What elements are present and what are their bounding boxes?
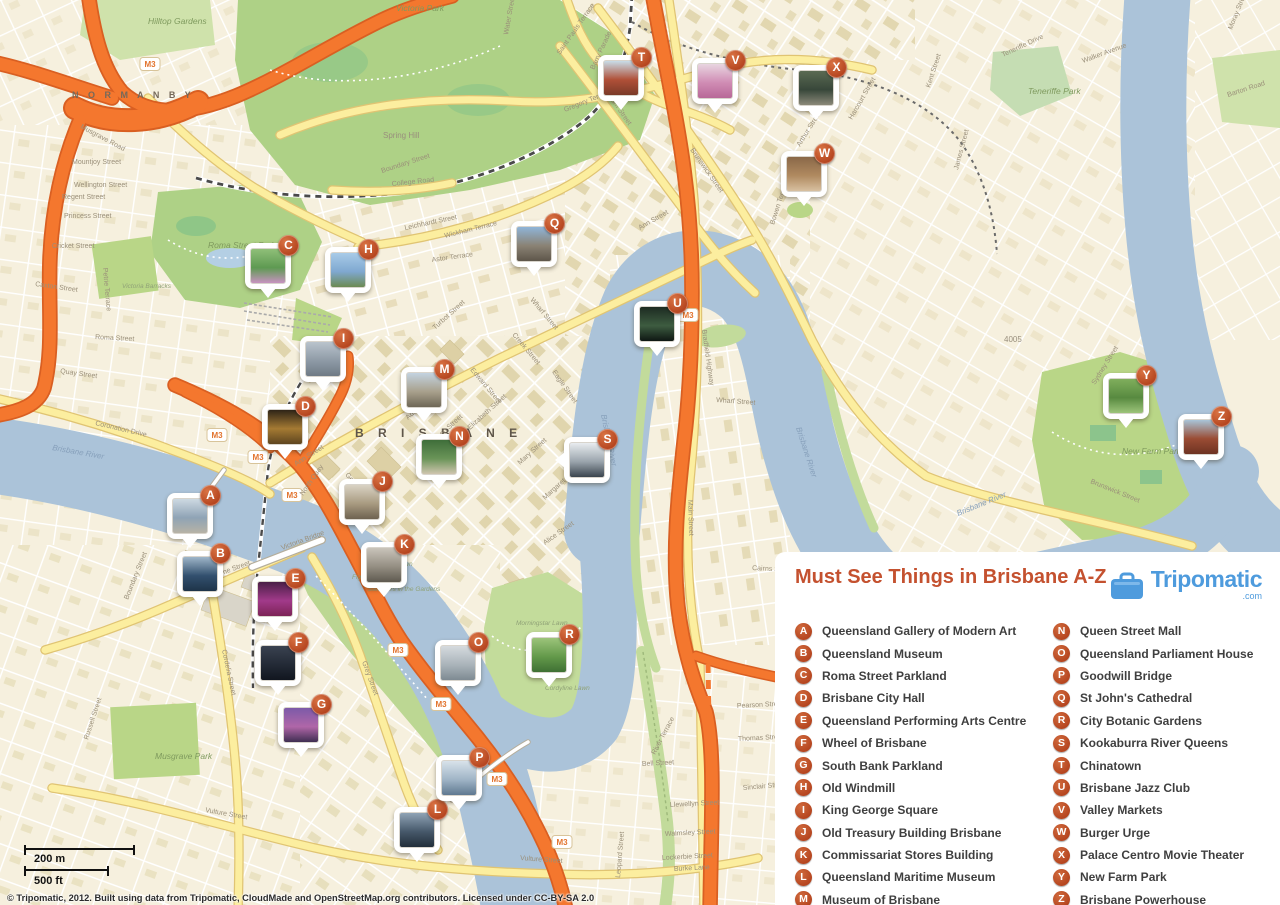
legend-badge: Y bbox=[1053, 869, 1070, 886]
tripomatic-logo[interactable]: Tripomatic .com bbox=[1109, 568, 1262, 601]
legend-item-label: Queensland Gallery of Modern Art bbox=[822, 624, 1016, 638]
poi-marker-h[interactable]: H bbox=[325, 247, 371, 293]
legend-badge: N bbox=[1053, 623, 1070, 640]
legend-item-label: Valley Markets bbox=[1080, 803, 1163, 817]
legend-item-label: Queensland Maritime Museum bbox=[822, 870, 995, 884]
legend-item-label: Museum of Brisbane bbox=[822, 893, 940, 905]
legend-item-label: Brisbane City Hall bbox=[822, 691, 925, 705]
legend-item-d[interactable]: DBrisbane City Hall bbox=[795, 687, 1053, 709]
marker-tail bbox=[354, 524, 370, 534]
poi-marker-w[interactable]: W bbox=[781, 151, 827, 197]
legend-item-i[interactable]: IKing George Square bbox=[795, 799, 1053, 821]
legend-item-label: Commissariat Stores Building bbox=[822, 848, 993, 862]
legend-panel: Must See Things in Brisbane A-Z Tripomat… bbox=[775, 552, 1280, 905]
marker-badge: F bbox=[288, 632, 309, 653]
legend-item-label: Kookaburra River Queens bbox=[1080, 736, 1228, 750]
legend-header: Must See Things in Brisbane A-Z Tripomat… bbox=[795, 566, 1280, 610]
legend-item-label: Goodwill Bridge bbox=[1080, 669, 1172, 683]
marker-tail bbox=[451, 800, 467, 810]
marker-badge: X bbox=[826, 57, 847, 78]
marker-tail bbox=[796, 196, 812, 206]
poi-marker-v[interactable]: V bbox=[692, 58, 738, 104]
place-label: N O R M A N B Y bbox=[72, 90, 194, 100]
legend-item-k[interactable]: KCommissariat Stores Building bbox=[795, 844, 1053, 866]
brand-tld: .com bbox=[1151, 592, 1262, 601]
motorway-shield: M3 bbox=[282, 489, 302, 502]
marker-badge: Y bbox=[1136, 365, 1157, 386]
place-label: Hilltop Gardens bbox=[148, 16, 207, 26]
street-label: Regent Street bbox=[62, 194, 105, 201]
marker-tail bbox=[192, 596, 208, 606]
legend-badge: D bbox=[795, 690, 812, 707]
svg-text:M3: M3 bbox=[556, 838, 568, 847]
legend-item-e[interactable]: EQueensland Performing Arts Centre bbox=[795, 710, 1053, 732]
legend-badge: I bbox=[795, 802, 812, 819]
poi-marker-u[interactable]: U bbox=[634, 301, 680, 347]
marker-badge: N bbox=[449, 426, 470, 447]
marker-tail bbox=[260, 288, 276, 298]
poi-marker-d[interactable]: D bbox=[262, 404, 308, 450]
legend-badge: U bbox=[1053, 779, 1070, 796]
marker-tail bbox=[409, 852, 425, 862]
marker-tail bbox=[649, 346, 665, 356]
marker-tail bbox=[416, 412, 432, 422]
marker-badge: J bbox=[372, 471, 393, 492]
marker-tail bbox=[555, 452, 565, 468]
legend-badge: W bbox=[1053, 824, 1070, 841]
legend-badge: G bbox=[795, 757, 812, 774]
legend-badge: H bbox=[795, 779, 812, 796]
poi-marker-i[interactable]: I bbox=[300, 336, 346, 382]
legend-item-label: Brisbane Powerhouse bbox=[1080, 893, 1206, 905]
place-label: 4005 bbox=[1004, 335, 1022, 344]
place-label: Victoria Park bbox=[396, 3, 445, 13]
legend-item-label: Queen Street Mall bbox=[1080, 624, 1181, 638]
legend-item-label: Brisbane Jazz Club bbox=[1080, 781, 1190, 795]
legend-item-x[interactable]: XPalace Centro Movie Theater bbox=[1053, 844, 1253, 866]
marker-badge: D bbox=[295, 396, 316, 417]
suitcase-icon bbox=[1109, 571, 1145, 601]
legend-item-h[interactable]: HOld Windmill bbox=[795, 777, 1053, 799]
legend-item-n[interactable]: NQueen Street Mall bbox=[1053, 620, 1253, 642]
poi-marker-o[interactable]: O bbox=[435, 640, 481, 686]
svg-text:M3: M3 bbox=[144, 60, 156, 69]
marker-badge: Z bbox=[1211, 406, 1232, 427]
place-label: Teneriffe Park bbox=[1028, 86, 1081, 96]
motorway-shield: M3 bbox=[487, 773, 507, 786]
street-label: Mountjoy Street bbox=[72, 159, 121, 166]
legend-badge: V bbox=[1053, 802, 1070, 819]
marker-badge: E bbox=[285, 568, 306, 589]
legend-item-t[interactable]: TChinatown bbox=[1053, 754, 1253, 776]
street-label: Cricket Street bbox=[52, 243, 94, 250]
brand-name: Tripomatic bbox=[1151, 566, 1262, 592]
poi-marker-k[interactable]: K bbox=[361, 542, 407, 588]
legend-item-j[interactable]: JOld Treasury Building Brisbane bbox=[795, 822, 1053, 844]
poi-marker-g[interactable]: G bbox=[278, 702, 324, 748]
copyright-attribution: © Tripomatic, 2012. Built using data fro… bbox=[7, 893, 594, 903]
legend-badge: O bbox=[1053, 645, 1070, 662]
legend-badge: Z bbox=[1053, 891, 1070, 905]
legend-item-b[interactable]: BQueensland Museum bbox=[795, 642, 1053, 664]
motorway-shield: M3 bbox=[207, 429, 227, 442]
scale-metric-label: 200 m bbox=[34, 853, 65, 865]
marker-tail bbox=[182, 538, 198, 548]
legend-badge: M bbox=[795, 891, 812, 905]
motorway-shield: M3 bbox=[140, 58, 160, 71]
poi-marker-t[interactable]: T bbox=[598, 55, 644, 101]
legend-item-m[interactable]: MMuseum of Brisbane bbox=[795, 889, 1053, 905]
poi-marker-b[interactable]: B bbox=[177, 551, 223, 597]
legend-badge: A bbox=[795, 623, 812, 640]
poi-marker-e[interactable]: E bbox=[252, 576, 298, 622]
legend-badge: X bbox=[1053, 847, 1070, 864]
svg-text:M3: M3 bbox=[435, 700, 447, 709]
legend-columns: AQueensland Gallery of Modern ArtBQueens… bbox=[795, 620, 1280, 905]
legend-item-label: Queensland Parliament House bbox=[1080, 647, 1253, 661]
marker-badge: R bbox=[559, 624, 580, 645]
marker-badge: P bbox=[469, 747, 490, 768]
marker-tail bbox=[450, 685, 466, 695]
legend-item-label: Old Windmill bbox=[822, 781, 895, 795]
motorway-shield: M3 bbox=[431, 698, 451, 711]
legend-badge: B bbox=[795, 645, 812, 662]
place-label: Spring Hill bbox=[383, 131, 420, 140]
marker-tail bbox=[293, 747, 309, 757]
legend-badge: K bbox=[795, 847, 812, 864]
legend-item-g[interactable]: GSouth Bank Parkland bbox=[795, 754, 1053, 776]
legend-column-1: AQueensland Gallery of Modern ArtBQueens… bbox=[795, 620, 1053, 905]
motorway-shield: M3 bbox=[552, 836, 572, 849]
poi-marker-p[interactable]: P bbox=[436, 755, 482, 801]
marker-badge: I bbox=[333, 328, 354, 349]
legend-badge: Q bbox=[1053, 690, 1070, 707]
marker-badge: S bbox=[597, 429, 618, 450]
legend-item-u[interactable]: UBrisbane Jazz Club bbox=[1053, 777, 1253, 799]
marker-badge: A bbox=[200, 485, 221, 506]
legend-item-p[interactable]: PGoodwill Bridge bbox=[1053, 665, 1253, 687]
marker-tail bbox=[808, 110, 824, 120]
marker-tail bbox=[1193, 459, 1209, 469]
poi-marker-r[interactable]: R bbox=[526, 632, 572, 678]
marker-tail bbox=[541, 677, 557, 687]
marker-tail bbox=[1118, 418, 1134, 428]
legend-item-label: Palace Centro Movie Theater bbox=[1080, 848, 1244, 862]
legend-item-o[interactable]: OQueensland Parliament House bbox=[1053, 642, 1253, 664]
marker-badge: V bbox=[725, 50, 746, 71]
marker-badge: C bbox=[278, 235, 299, 256]
place-label: New Farm Park bbox=[1122, 446, 1182, 456]
place-label: Victoria Barracks bbox=[122, 283, 172, 290]
marker-tail bbox=[267, 621, 283, 631]
legend-badge: F bbox=[795, 735, 812, 752]
legend-item-y[interactable]: YNew Farm Park bbox=[1053, 866, 1253, 888]
poi-marker-y[interactable]: Y bbox=[1103, 373, 1149, 419]
poi-marker-m[interactable]: M bbox=[401, 367, 447, 413]
legend-item-label: Roma Street Parkland bbox=[822, 669, 947, 683]
poi-marker-a[interactable]: A bbox=[167, 493, 213, 539]
legend-item-label: South Bank Parkland bbox=[822, 759, 943, 773]
marker-tail bbox=[707, 103, 723, 113]
marker-tail bbox=[270, 685, 286, 695]
legend-item-w[interactable]: WBurger Urge bbox=[1053, 822, 1253, 844]
marker-tail bbox=[431, 479, 447, 489]
legend-item-a[interactable]: AQueensland Gallery of Modern Art bbox=[795, 620, 1053, 642]
svg-text:M3: M3 bbox=[211, 431, 223, 440]
legend-item-l[interactable]: LQueensland Maritime Museum bbox=[795, 866, 1053, 888]
poi-marker-n[interactable]: N bbox=[416, 434, 462, 480]
legend-item-label: St John's Cathedral bbox=[1080, 691, 1192, 705]
marker-tail bbox=[340, 292, 356, 302]
legend-item-label: King George Square bbox=[822, 803, 938, 817]
marker-tail bbox=[613, 100, 629, 110]
svg-text:M3: M3 bbox=[392, 646, 404, 655]
legend-item-label: Queensland Museum bbox=[822, 647, 943, 661]
brand-text: Tripomatic .com bbox=[1151, 568, 1262, 601]
legend-badge: J bbox=[795, 824, 812, 841]
marker-tail bbox=[277, 449, 293, 459]
marker-badge: H bbox=[358, 239, 379, 260]
legend-item-r[interactable]: RCity Botanic Gardens bbox=[1053, 710, 1253, 732]
legend-badge: E bbox=[795, 712, 812, 729]
place-label: Morningstar Lawn bbox=[516, 620, 568, 627]
svg-text:M3: M3 bbox=[491, 775, 503, 784]
legend-item-q[interactable]: QSt John's Cathedral bbox=[1053, 687, 1253, 709]
legend-item-label: Burger Urge bbox=[1080, 826, 1150, 840]
poi-marker-x[interactable]: X bbox=[793, 65, 839, 111]
marker-tail bbox=[315, 381, 331, 391]
street-label: Princess Street bbox=[64, 213, 112, 220]
poi-marker-c[interactable]: C bbox=[245, 243, 291, 289]
marker-badge: W bbox=[814, 143, 835, 164]
legend-item-s[interactable]: SKookaburra River Queens bbox=[1053, 732, 1253, 754]
legend-column-2: NQueen Street MallOQueensland Parliament… bbox=[1053, 620, 1253, 905]
legend-item-z[interactable]: ZBrisbane Powerhouse bbox=[1053, 889, 1253, 905]
marker-badge: U bbox=[667, 293, 688, 314]
legend-badge: C bbox=[795, 667, 812, 684]
legend-item-label: City Botanic Gardens bbox=[1080, 714, 1202, 728]
poi-marker-f[interactable]: F bbox=[255, 640, 301, 686]
poi-marker-q[interactable]: Q bbox=[511, 221, 557, 267]
street-label: Main Street bbox=[686, 500, 694, 536]
poi-marker-l[interactable]: L bbox=[394, 807, 440, 853]
marker-tail bbox=[376, 587, 392, 597]
marker-badge: O bbox=[468, 632, 489, 653]
scale-imperial-label: 500 ft bbox=[34, 875, 63, 886]
brisbane-map-screenshot: M3M3M3M3M3M3M3M3M3 N O R M A N B YB R I … bbox=[0, 0, 1280, 905]
scale-bar: 200 m 500 ft bbox=[22, 844, 152, 886]
svg-text:M3: M3 bbox=[252, 453, 264, 462]
legend-item-f[interactable]: FWheel of Brisbane bbox=[795, 732, 1053, 754]
marker-tail bbox=[526, 266, 542, 276]
legend-item-label: Queensland Performing Arts Centre bbox=[822, 714, 1026, 728]
motorway-shield: M3 bbox=[388, 644, 408, 657]
legend-badge: R bbox=[1053, 712, 1070, 729]
legend-badge: T bbox=[1053, 757, 1070, 774]
legend-badge: S bbox=[1053, 735, 1070, 752]
poi-marker-j[interactable]: J bbox=[339, 479, 385, 525]
svg-text:M3: M3 bbox=[286, 491, 298, 500]
poi-marker-z[interactable]: Z bbox=[1178, 414, 1224, 460]
legend-item-label: Wheel of Brisbane bbox=[822, 736, 927, 750]
marker-badge: G bbox=[311, 694, 332, 715]
poi-marker-s[interactable]: S bbox=[564, 437, 610, 483]
place-label: Musgrave Park bbox=[155, 751, 213, 761]
marker-badge: M bbox=[434, 359, 455, 380]
marker-badge: B bbox=[210, 543, 231, 564]
legend-item-c[interactable]: CRoma Street Parkland bbox=[795, 665, 1053, 687]
marker-badge: L bbox=[427, 799, 448, 820]
street-label: Wellington Street bbox=[74, 182, 127, 189]
legend-badge: L bbox=[795, 869, 812, 886]
motorway-shield: M3 bbox=[248, 451, 268, 464]
marker-badge: Q bbox=[544, 213, 565, 234]
legend-item-label: Chinatown bbox=[1080, 759, 1141, 773]
legend-item-label: New Farm Park bbox=[1080, 870, 1167, 884]
marker-badge: T bbox=[631, 47, 652, 68]
svg-text:M3: M3 bbox=[682, 311, 694, 320]
legend-item-v[interactable]: VValley Markets bbox=[1053, 799, 1253, 821]
legend-badge: P bbox=[1053, 667, 1070, 684]
marker-badge: K bbox=[394, 534, 415, 555]
legend-item-label: Old Treasury Building Brisbane bbox=[822, 826, 1001, 840]
